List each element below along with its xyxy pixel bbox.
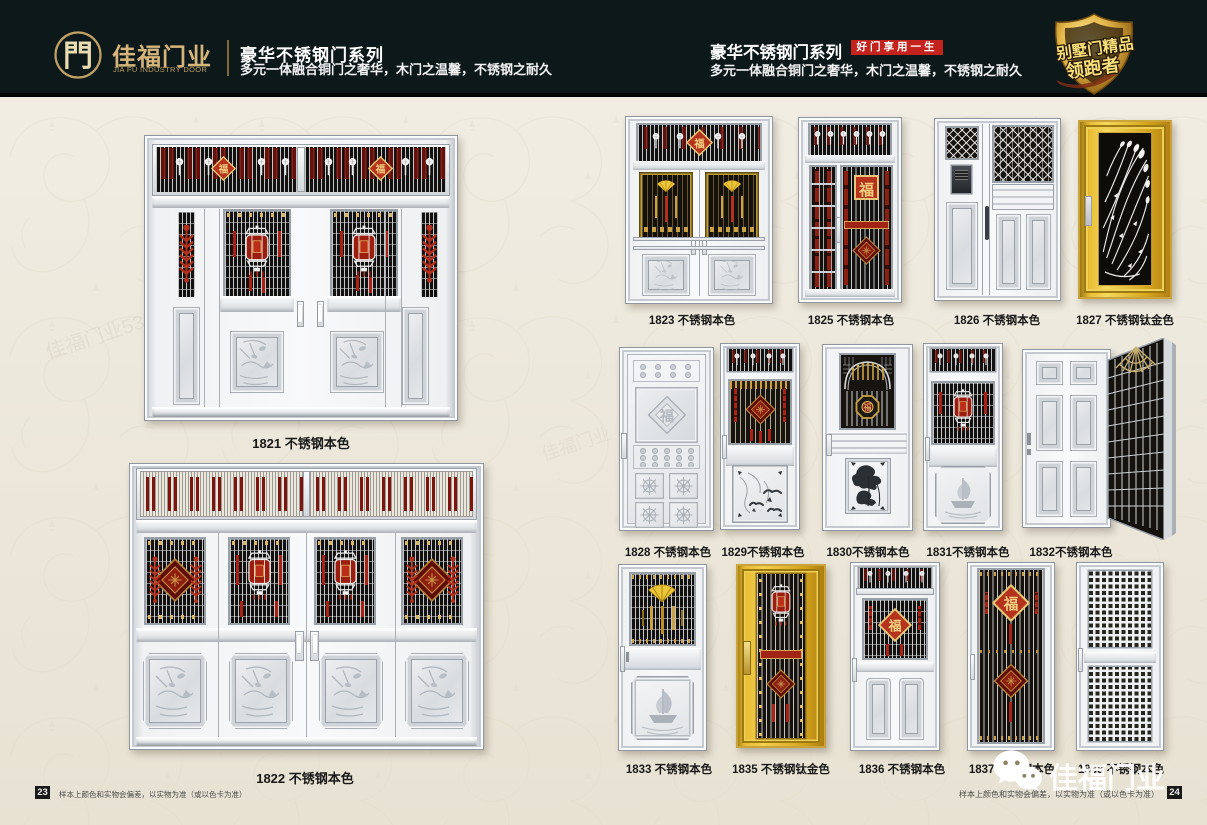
svg-text:福: 福 [864, 403, 872, 412]
svg-text:門: 門 [63, 40, 93, 73]
svg-text:福: 福 [659, 408, 674, 424]
